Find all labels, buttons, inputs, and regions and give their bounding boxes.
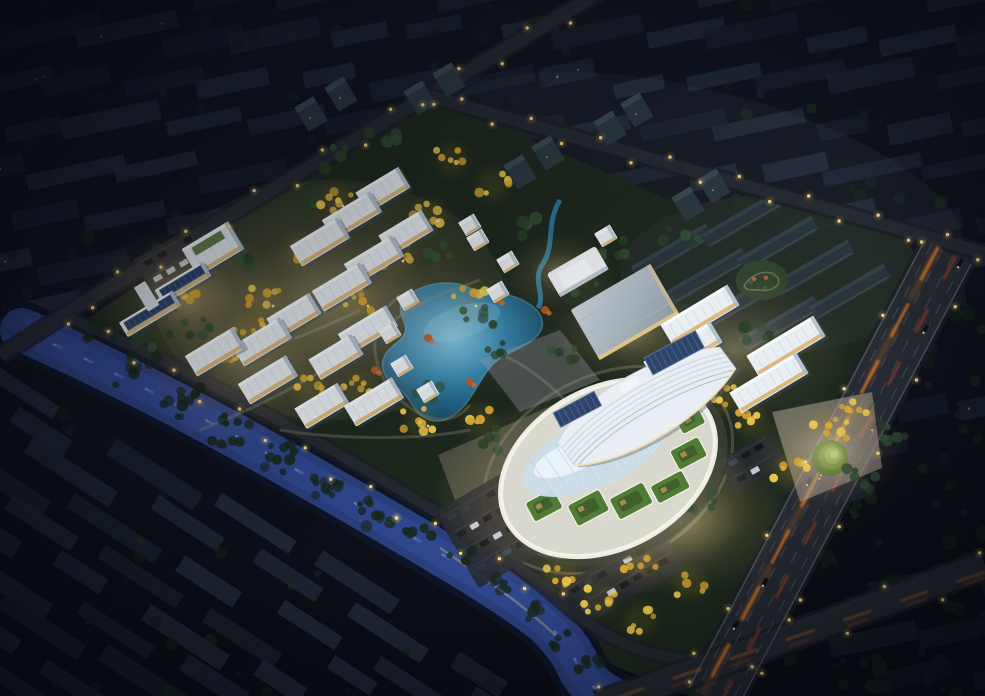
- corner-shadow-overlay: [0, 0, 985, 696]
- masterplan-scene: [0, 0, 985, 696]
- aerial-rendering: [0, 0, 985, 696]
